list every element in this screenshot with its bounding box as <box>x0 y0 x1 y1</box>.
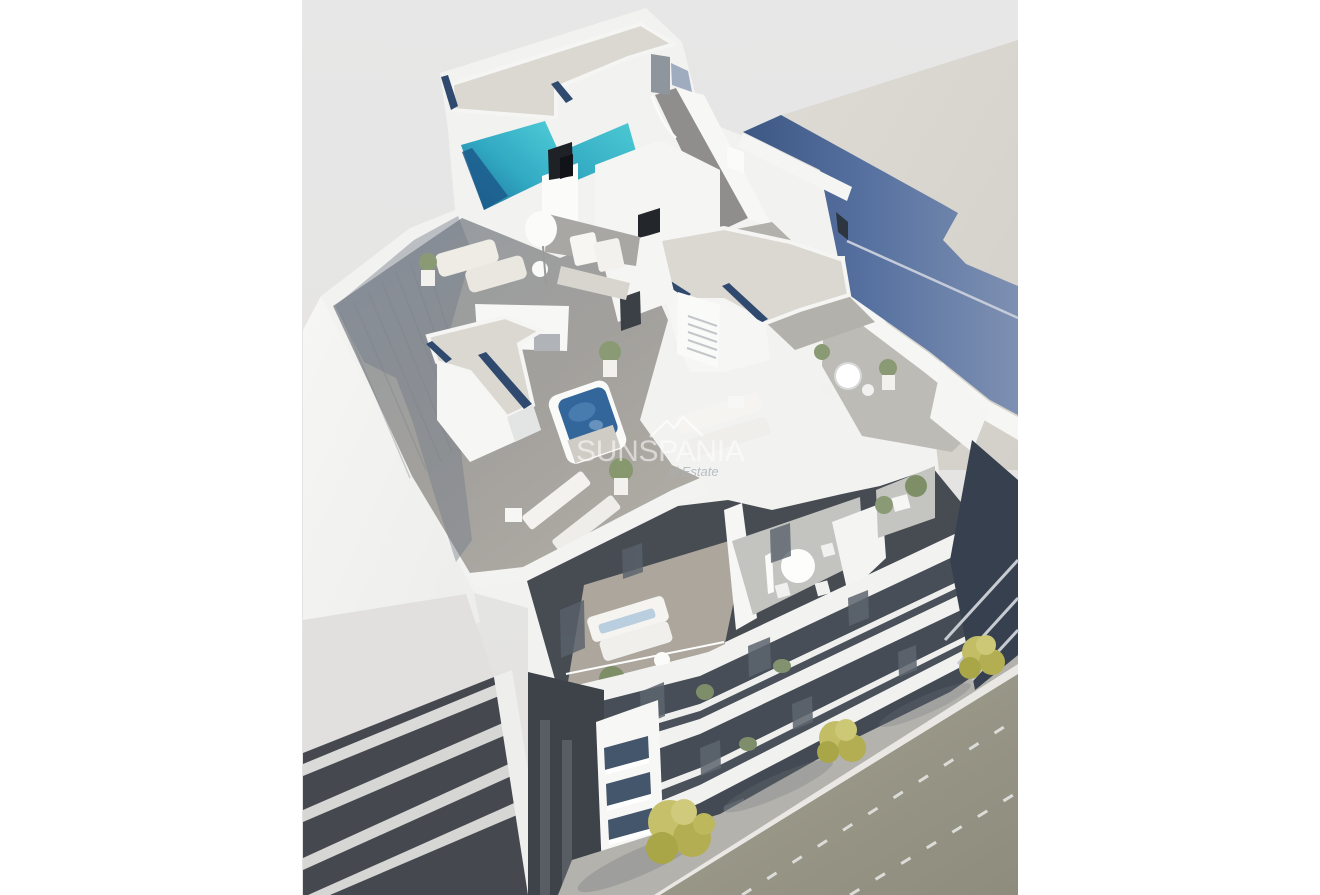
svg-text:al Estate: al Estate <box>668 464 719 479</box>
svg-text:SUNSPANIA: SUNSPANIA <box>576 435 745 468</box>
